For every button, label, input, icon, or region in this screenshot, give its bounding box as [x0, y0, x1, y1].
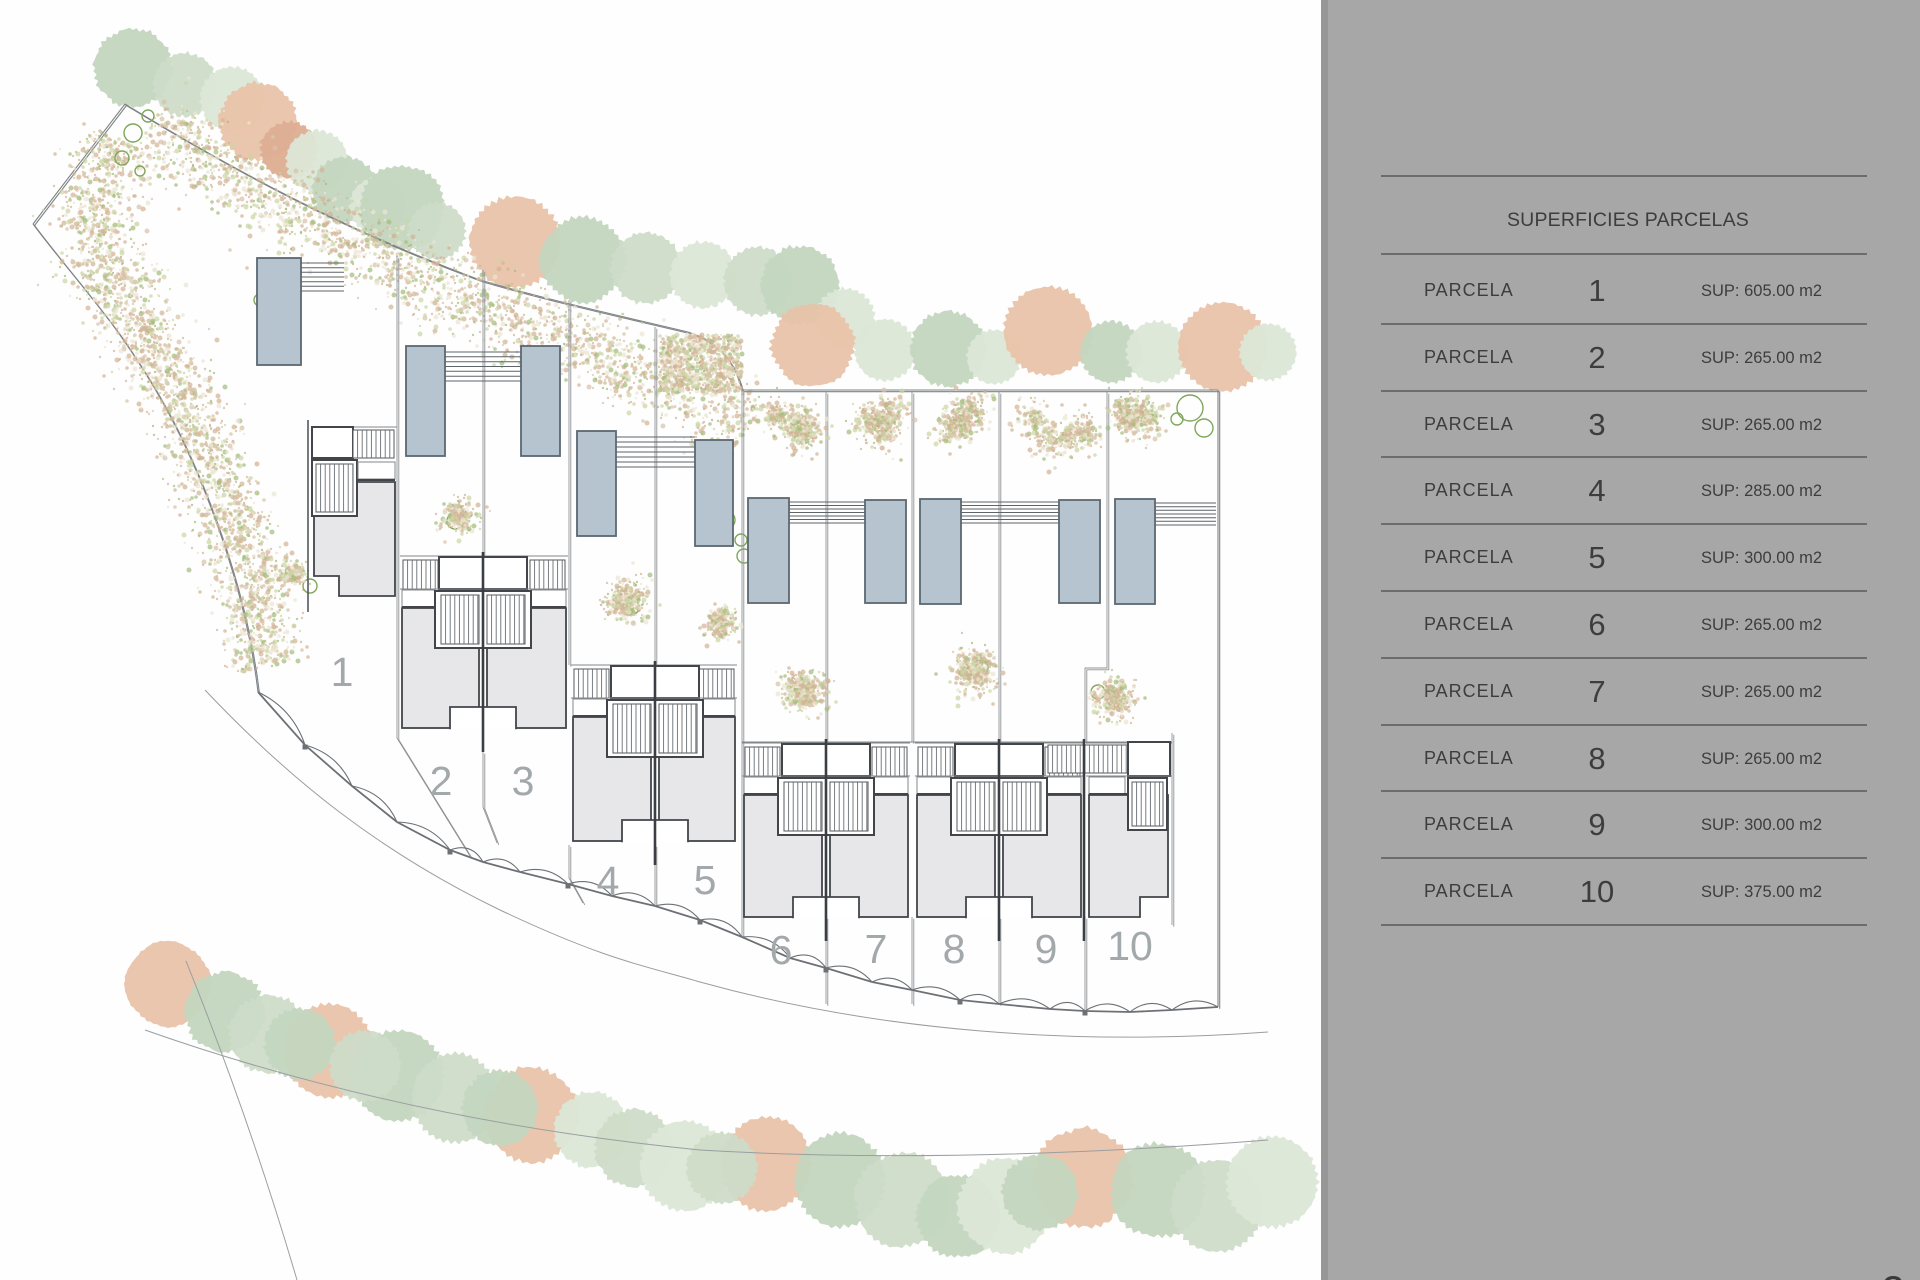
svg-text:2: 2 [430, 758, 453, 804]
svg-text:6: 6 [1588, 607, 1605, 642]
svg-text:SUP: 265.00 m2: SUP: 265.00 m2 [1701, 349, 1822, 367]
svg-text:9: 9 [1588, 807, 1605, 842]
svg-text:SUP: 300.00 m2: SUP: 300.00 m2 [1701, 549, 1822, 567]
svg-text:1: 1 [1588, 273, 1605, 308]
svg-text:3: 3 [512, 758, 535, 804]
svg-text:SUP: 265.00 m2: SUP: 265.00 m2 [1701, 683, 1822, 701]
svg-text:SUPERFICIES PARCELAS: SUPERFICIES PARCELAS [1507, 209, 1749, 231]
svg-text:PARCELA: PARCELA [1424, 547, 1514, 567]
svg-text:PARCELA: PARCELA [1424, 614, 1514, 634]
svg-text:SUP: 605.00 m2: SUP: 605.00 m2 [1701, 282, 1822, 300]
svg-text:SUP: 265.00 m2: SUP: 265.00 m2 [1701, 750, 1822, 768]
svg-text:SUP: 265.00 m2: SUP: 265.00 m2 [1701, 416, 1822, 434]
svg-text:PARCELA: PARCELA [1424, 814, 1514, 834]
svg-text:8: 8 [1588, 741, 1605, 776]
svg-text:5: 5 [1588, 540, 1605, 575]
svg-text:2: 2 [1588, 340, 1605, 375]
svg-text:2: 2 [1881, 1267, 1904, 1280]
svg-text:10: 10 [1107, 923, 1153, 969]
svg-text:PARCELA: PARCELA [1424, 681, 1514, 701]
svg-text:SUP: 285.00 m2: SUP: 285.00 m2 [1701, 482, 1822, 500]
svg-text:PARCELA: PARCELA [1424, 347, 1514, 367]
svg-text:10: 10 [1580, 874, 1614, 909]
svg-text:SUP: 375.00 m2: SUP: 375.00 m2 [1701, 883, 1822, 901]
svg-text:6: 6 [770, 927, 793, 973]
svg-text:5: 5 [694, 857, 717, 903]
svg-text:SUP: 265.00 m2: SUP: 265.00 m2 [1701, 616, 1822, 634]
svg-text:8: 8 [943, 926, 966, 972]
svg-text:SUP: 300.00 m2: SUP: 300.00 m2 [1701, 816, 1822, 834]
svg-text:3: 3 [1588, 407, 1605, 442]
svg-text:7: 7 [1588, 674, 1605, 709]
svg-text:9: 9 [1035, 926, 1058, 972]
svg-text:PARCELA: PARCELA [1424, 414, 1514, 434]
svg-text:PARCELA: PARCELA [1424, 748, 1514, 768]
svg-text:1: 1 [331, 649, 354, 695]
svg-text:PARCELA: PARCELA [1424, 480, 1514, 500]
svg-text:7: 7 [865, 926, 888, 972]
svg-text:4: 4 [1588, 473, 1605, 508]
svg-text:PARCELA: PARCELA [1424, 280, 1514, 300]
svg-text:4: 4 [597, 858, 620, 904]
svg-text:PARCELA: PARCELA [1424, 881, 1514, 901]
